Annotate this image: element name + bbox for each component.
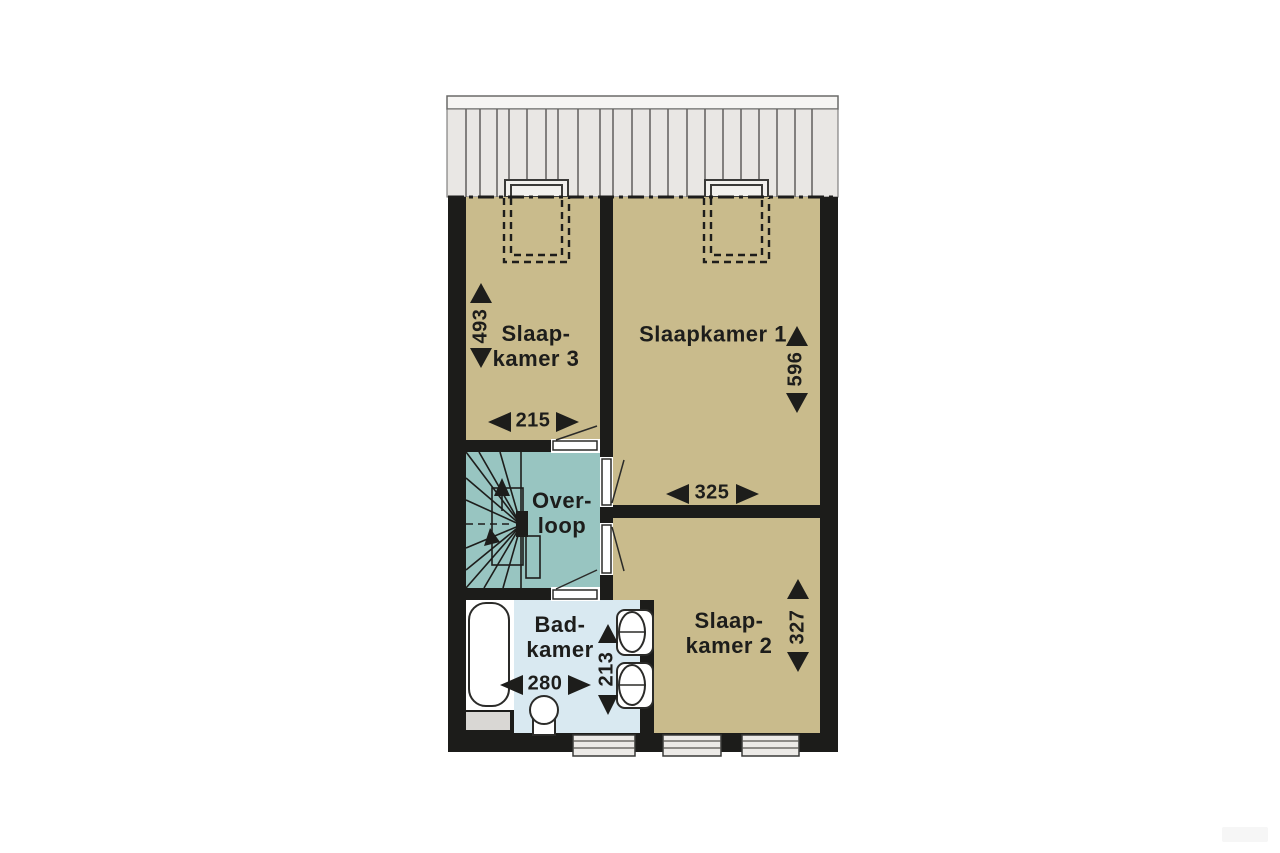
- sink-bottom: [617, 663, 653, 708]
- room-label-badkamer: Bad- kamer: [526, 612, 593, 662]
- roof: [447, 96, 838, 197]
- room-label-slaapkamer3: Slaap- kamer 3: [493, 321, 580, 371]
- window-slaapkamer2-right: [742, 735, 799, 756]
- dim-badkamer-depth: 213: [596, 652, 619, 687]
- dim-badkamer-width: 280: [528, 673, 563, 696]
- roof-ridge-band: [447, 96, 838, 109]
- sink-top: [617, 610, 653, 655]
- stair-newel: [516, 511, 528, 537]
- floorplan-drawing: [0, 0, 1280, 853]
- window-badkamer: [573, 735, 635, 756]
- toilet: [530, 696, 558, 735]
- floorplan-canvas: Slaap- kamer 3 Slaapkamer 1 Slaap- kamer…: [0, 0, 1280, 853]
- bathtub: [469, 603, 509, 706]
- dim-slaapkamer3-width: 215: [516, 410, 551, 433]
- dim-slaapkamer1-depth: 596: [785, 352, 808, 387]
- room-label-slaapkamer1: Slaapkamer 1: [639, 322, 787, 347]
- dim-slaapkamer1-width: 325: [695, 482, 730, 505]
- room-label-overloop: Over- loop: [532, 488, 592, 538]
- window-slaapkamer2-left: [663, 735, 721, 756]
- dim-slaapkamer2-depth: 327: [787, 610, 810, 645]
- dim-slaapkamer3-depth: 493: [470, 309, 493, 344]
- shelf: [466, 712, 510, 730]
- watermark: [1222, 827, 1268, 842]
- room-label-slaapkamer2: Slaap- kamer 2: [686, 608, 773, 658]
